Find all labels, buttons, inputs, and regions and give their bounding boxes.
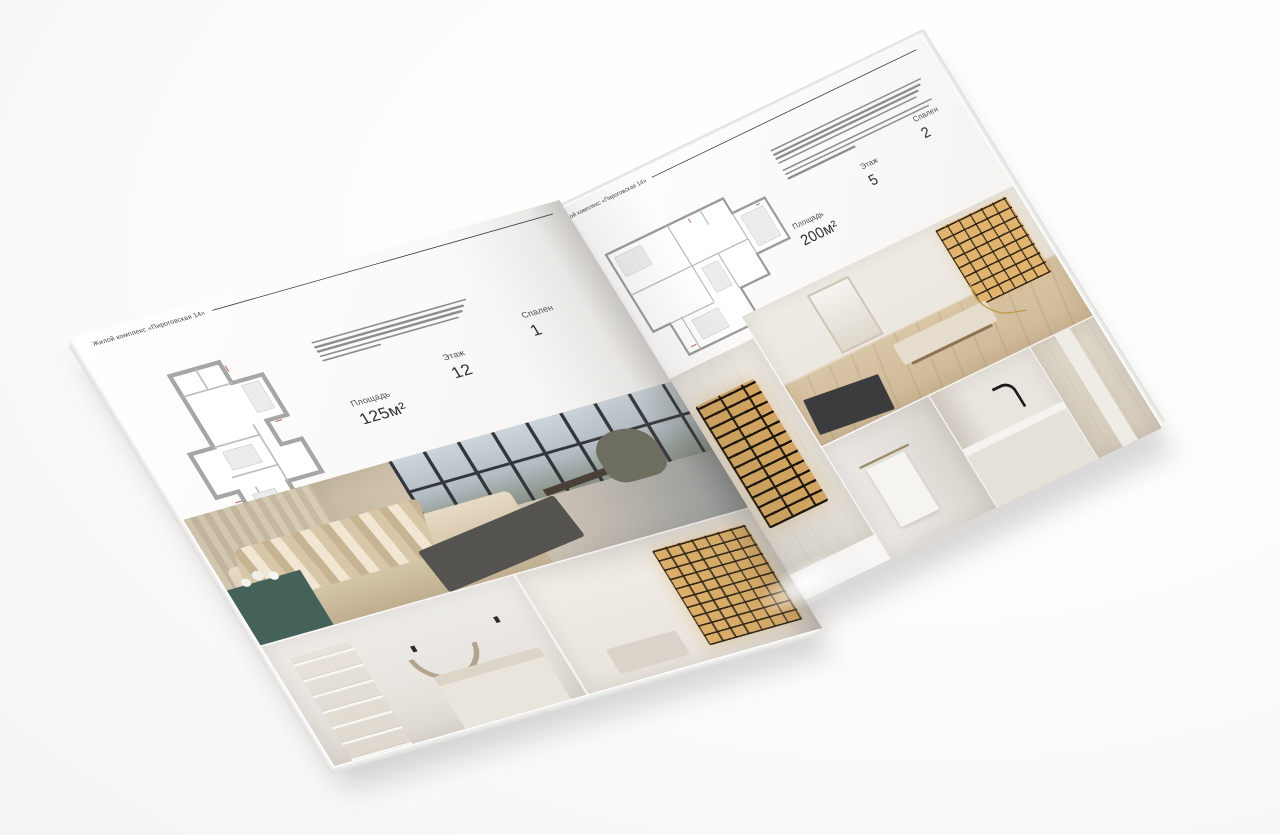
- wall-shelves: [289, 641, 412, 761]
- right-floor-spec: Этаж 5: [859, 156, 891, 190]
- text-line: [319, 316, 459, 357]
- floor-value: 5: [866, 167, 892, 190]
- left-page-title: Жилой комплекс «Пироговская 14»: [91, 309, 207, 347]
- wall-sconce: [493, 617, 501, 624]
- left-bedrooms-spec: Спален 1: [519, 303, 567, 340]
- left-floor-spec: Этаж 12: [441, 348, 480, 382]
- bedrooms-value: 1: [527, 315, 568, 340]
- black-faucet: [991, 380, 1026, 415]
- right-description-text: [770, 78, 940, 182]
- towel: [866, 451, 940, 527]
- left-area-spec: Площадь 125м²: [349, 388, 412, 429]
- text-line: [317, 310, 463, 353]
- floor-value: 12: [448, 360, 479, 382]
- text-line: [314, 304, 465, 348]
- left-header-rule: [212, 214, 553, 311]
- console-table: [606, 630, 691, 674]
- wall-sconce: [410, 646, 418, 653]
- backdrop: Жилой комплекс «Пироговская 14» Площадь …: [0, 0, 1280, 835]
- mirror: [806, 276, 884, 354]
- floor-label: Этаж: [441, 348, 467, 363]
- left-page-header: Жилой комплекс «Пироговская 14»: [91, 211, 555, 348]
